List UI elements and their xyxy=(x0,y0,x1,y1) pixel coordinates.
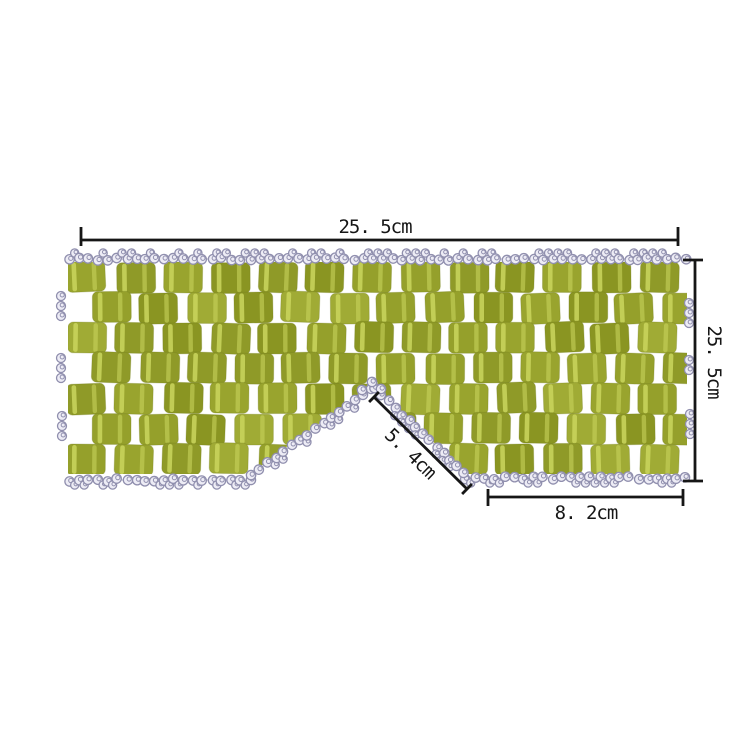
jade-tile xyxy=(305,443,344,474)
jade-tile xyxy=(139,293,178,324)
cord-highlight xyxy=(616,445,621,474)
jade-tile xyxy=(545,321,585,353)
jade-tile xyxy=(211,323,251,355)
cord-highlight xyxy=(286,354,291,383)
cord-highlight xyxy=(663,385,667,414)
cord-highlight xyxy=(546,353,551,382)
jade-tile xyxy=(114,444,154,476)
jade-tile xyxy=(590,444,630,476)
cord-highlight xyxy=(454,323,459,352)
jade-tile xyxy=(163,323,202,354)
cord-highlight xyxy=(213,354,218,383)
jade-tile xyxy=(164,262,203,293)
cord-highlight xyxy=(479,353,484,382)
cord-highlight xyxy=(401,293,406,322)
dimension-label-bottom-right-width: 8. 2cm xyxy=(555,502,618,524)
cord-highlight xyxy=(666,263,671,292)
cord-highlight xyxy=(217,264,222,293)
cord-highlight xyxy=(356,294,361,323)
cord-highlight xyxy=(497,414,502,443)
jade-tile xyxy=(258,261,298,293)
jade-tile xyxy=(164,382,204,414)
cord-highlight xyxy=(668,294,673,323)
jade-tile xyxy=(209,442,249,474)
dimension-bottom-right-width: 8. 2cm xyxy=(488,489,683,524)
cord-highlight xyxy=(381,294,386,323)
cord-highlight xyxy=(140,324,145,353)
cord-highlight xyxy=(548,384,554,413)
cord-highlight xyxy=(451,355,456,384)
cord-highlight xyxy=(499,353,503,382)
cord-highlight xyxy=(500,262,505,291)
cord-highlight xyxy=(331,385,336,414)
jade-tile xyxy=(235,414,274,445)
cord-highlight xyxy=(144,294,149,323)
jade-tile xyxy=(117,262,156,293)
cord-highlight xyxy=(354,354,359,383)
jade-tile xyxy=(425,291,465,323)
jade-tile xyxy=(426,354,465,385)
jade-tile xyxy=(280,291,320,323)
jade-tile xyxy=(471,412,510,444)
cord-highlight xyxy=(358,445,363,474)
jade-tile xyxy=(66,444,105,475)
cord-highlight xyxy=(474,323,478,352)
jade-tile xyxy=(92,414,131,445)
jade-tile xyxy=(542,262,581,293)
jade-tile xyxy=(114,383,154,415)
cord-highlight xyxy=(643,323,649,352)
jade-tile xyxy=(449,383,488,414)
jade-tile xyxy=(140,352,180,384)
cord-highlight xyxy=(188,324,193,353)
cord-highlight xyxy=(643,385,648,414)
cord-highlight xyxy=(168,324,173,353)
jade-tile xyxy=(543,382,583,414)
cord-highlight xyxy=(332,324,337,353)
jade-tile xyxy=(234,292,273,323)
cord-highlight xyxy=(620,354,626,383)
cord-highlight xyxy=(668,415,673,444)
cord-highlight xyxy=(239,293,244,322)
cord-highlight xyxy=(475,385,480,414)
cord-highlight xyxy=(574,293,579,322)
cord-highlight xyxy=(213,294,218,323)
jade-tile xyxy=(307,323,347,355)
cord-highlight xyxy=(235,383,240,412)
jade-tile xyxy=(400,383,440,415)
jade-tile xyxy=(211,263,250,294)
cord-highlight xyxy=(569,444,574,473)
cord-highlight xyxy=(360,322,365,351)
cord-highlight xyxy=(592,415,597,444)
cord-highlight xyxy=(92,445,97,474)
cord-highlight xyxy=(165,415,170,444)
cord-highlight xyxy=(93,323,98,352)
cord-highlight xyxy=(358,262,363,291)
cord-highlight xyxy=(140,446,145,475)
cord-highlight xyxy=(549,444,554,473)
cord-highlight xyxy=(260,354,265,383)
cord-highlight xyxy=(310,262,315,291)
jade-tile xyxy=(376,353,415,384)
jade-eye-mask-figure: 25. 5cm 25. 5cm 5. 4cm 8. 2cm xyxy=(0,0,750,750)
cord-highlight xyxy=(73,323,78,352)
jade-tile xyxy=(401,261,440,293)
jade-tile xyxy=(520,352,559,383)
cord-highlight xyxy=(521,323,526,352)
cord-highlight xyxy=(524,413,529,442)
jade-tile xyxy=(495,444,534,475)
product-measurement-image: 25. 5cm 25. 5cm 5. 4cm 8. 2cm xyxy=(0,0,750,750)
cord-highlight xyxy=(596,446,601,475)
jade-tile xyxy=(520,292,560,324)
jade-tile xyxy=(66,383,106,415)
cord-highlight xyxy=(668,353,674,382)
jade-tile xyxy=(449,322,488,353)
jade-tile xyxy=(569,292,608,323)
cord-highlight xyxy=(526,353,531,382)
jade-tile xyxy=(496,322,535,353)
cord-highlight xyxy=(330,263,335,292)
cord-highlight xyxy=(142,263,147,292)
jade-tile xyxy=(591,383,631,415)
jade-tile xyxy=(114,322,153,353)
cord-highlight xyxy=(139,385,144,414)
jade-tile xyxy=(590,322,630,354)
cord-highlight xyxy=(597,263,602,292)
cord-highlight xyxy=(595,293,599,322)
cord-highlight xyxy=(240,354,245,383)
jade-tile xyxy=(186,414,226,446)
cord-highlight xyxy=(336,294,341,323)
jade-tile xyxy=(330,293,369,324)
jade-tile xyxy=(187,352,227,384)
cord-highlight xyxy=(164,294,169,323)
cord-highlight xyxy=(193,294,198,323)
jade-tile xyxy=(519,412,558,444)
cord-highlight xyxy=(119,384,124,413)
cord-highlight xyxy=(500,293,504,322)
jade-tile xyxy=(473,352,512,383)
jade-tile xyxy=(92,291,131,322)
cord-highlight xyxy=(455,384,460,413)
cord-highlight xyxy=(521,263,526,292)
jade-tile xyxy=(543,443,582,474)
cord-highlight xyxy=(355,414,360,443)
cord-highlight xyxy=(122,264,127,293)
cord-highlight xyxy=(284,384,289,413)
jade-tile xyxy=(376,292,416,324)
jade-tile-face xyxy=(305,443,344,474)
cord-highlight xyxy=(166,353,171,382)
jade-tile-face xyxy=(353,444,392,475)
jade-tile xyxy=(616,413,655,445)
cord-highlight xyxy=(616,384,621,413)
jade-tile xyxy=(450,262,489,293)
jade-tile xyxy=(614,292,654,324)
cord-highlight xyxy=(286,292,292,321)
cord-highlight xyxy=(263,324,268,353)
dimension-top-width: 25. 5cm xyxy=(81,216,678,246)
cord-highlight xyxy=(596,384,601,413)
jade-tile xyxy=(640,261,680,293)
cord-highlight xyxy=(118,292,123,321)
jade-tile xyxy=(567,352,607,384)
cord-highlight xyxy=(283,324,288,353)
jade-tile xyxy=(281,352,320,384)
jade-eye-mask xyxy=(57,249,703,489)
cord-highlight xyxy=(169,263,174,292)
cord-highlight xyxy=(118,415,122,444)
cord-highlight xyxy=(98,293,103,322)
jade-tile xyxy=(474,292,513,323)
jade-tile xyxy=(258,383,297,414)
cord-highlight xyxy=(263,384,268,413)
jade-tile xyxy=(139,414,179,446)
jade-tile xyxy=(496,381,536,413)
jade-tile xyxy=(352,261,392,293)
cord-highlight xyxy=(500,445,505,474)
cord-highlight xyxy=(380,323,385,352)
cord-highlight xyxy=(235,444,240,473)
cord-highlight xyxy=(306,353,311,382)
jade-tile xyxy=(235,353,274,384)
jade-tile xyxy=(257,323,296,354)
cord-highlight xyxy=(545,414,550,443)
cord-highlight xyxy=(288,415,293,444)
cord-highlight xyxy=(215,383,220,412)
cord-highlight xyxy=(572,415,577,444)
cord-highlight xyxy=(645,262,650,291)
cord-highlight xyxy=(334,354,339,383)
jade-tile xyxy=(305,261,345,293)
cord-highlight xyxy=(215,443,220,472)
cord-highlight xyxy=(568,263,573,292)
jade-tile xyxy=(567,413,606,444)
cord-highlight xyxy=(120,323,125,352)
cord-highlight xyxy=(169,383,174,412)
cord-highlight xyxy=(144,415,149,444)
cord-highlight xyxy=(642,415,647,444)
jade-tile xyxy=(91,351,131,383)
cord-highlight xyxy=(548,263,553,292)
cord-highlight xyxy=(311,385,316,414)
cord-highlight xyxy=(479,293,484,322)
cord-highlight xyxy=(312,324,317,353)
cord-highlight xyxy=(190,384,195,413)
cord-highlight xyxy=(237,264,242,293)
cord-highlight xyxy=(330,444,335,473)
jade-tile xyxy=(68,322,107,353)
cord-highlight xyxy=(98,415,103,444)
cord-highlight xyxy=(310,444,315,473)
cord-highlight xyxy=(449,414,454,443)
jade-tile xyxy=(210,382,249,413)
cord-highlight xyxy=(406,263,411,292)
cord-highlight xyxy=(401,354,406,383)
cord-highlight xyxy=(618,263,623,292)
jade-tile xyxy=(402,321,442,353)
cord-highlight xyxy=(146,353,151,382)
cord-highlight xyxy=(456,263,461,292)
jade-tile xyxy=(162,443,202,475)
cord-highlight xyxy=(520,445,525,474)
cord-highlight xyxy=(240,415,245,444)
cord-highlight xyxy=(501,323,506,352)
cord-highlight xyxy=(379,445,384,474)
jade-tile xyxy=(592,262,631,293)
jade-tile xyxy=(328,353,367,384)
jade-tile xyxy=(353,444,392,475)
cord-highlight xyxy=(621,415,626,444)
jade-tile xyxy=(637,321,677,353)
cord-highlight xyxy=(189,263,194,292)
cord-highlight xyxy=(260,415,264,444)
dimension-label-top-width: 25. 5cm xyxy=(338,216,412,238)
cord-highlight xyxy=(378,263,383,292)
cord-highlight xyxy=(477,413,482,442)
cord-highlight xyxy=(427,323,432,352)
cord-highlight xyxy=(476,263,480,292)
cord-highlight xyxy=(72,445,77,474)
cord-highlight xyxy=(193,353,199,382)
jade-tile xyxy=(354,321,394,353)
cord-highlight xyxy=(431,355,436,384)
jade-tile xyxy=(188,293,227,324)
jade-tile xyxy=(638,384,677,415)
jade-tile xyxy=(615,353,655,385)
cord-highlight xyxy=(119,445,125,474)
cord-highlight xyxy=(259,293,264,322)
jade-tile xyxy=(495,261,535,293)
cord-highlight xyxy=(427,262,432,291)
jade-tile xyxy=(640,444,680,476)
cord-highlight xyxy=(381,355,386,384)
cord-highlight xyxy=(407,323,412,352)
dimension-label-right-height: 25. 5cm xyxy=(703,325,725,399)
